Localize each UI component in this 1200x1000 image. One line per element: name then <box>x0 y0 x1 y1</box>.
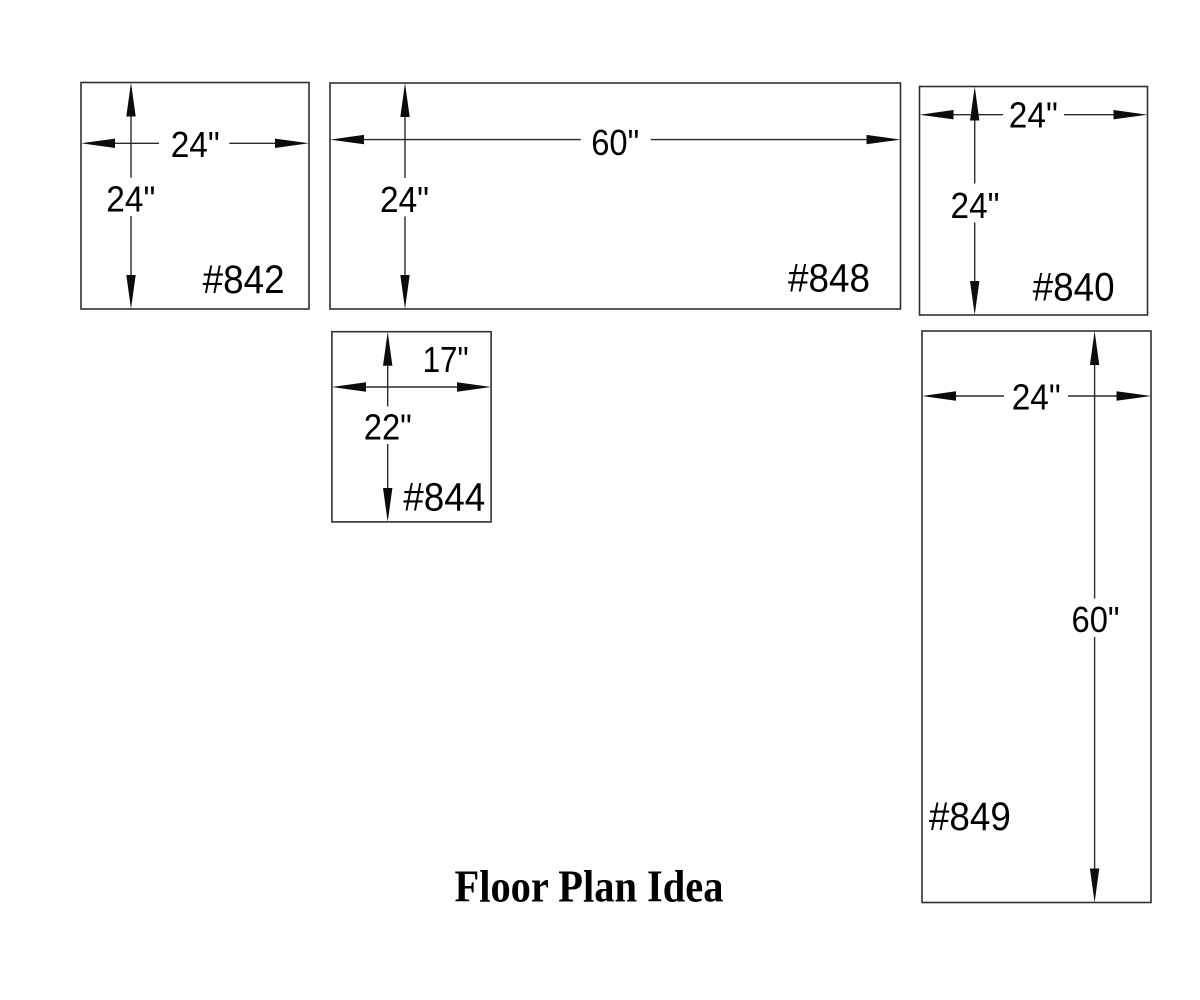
svg-text:#849: #849 <box>929 795 1011 839</box>
svg-text:17": 17" <box>423 339 469 380</box>
svg-text:#842: #842 <box>203 258 285 302</box>
svg-text:24": 24" <box>1012 377 1061 418</box>
svg-text:24": 24" <box>951 185 1000 226</box>
svg-text:22": 22" <box>364 407 412 448</box>
svg-text:24": 24" <box>1009 95 1058 136</box>
svg-text:24": 24" <box>171 124 220 165</box>
svg-text:24": 24" <box>380 179 429 220</box>
svg-text:#844: #844 <box>403 476 485 520</box>
svg-text:60": 60" <box>591 122 639 163</box>
svg-text:#840: #840 <box>1033 265 1115 309</box>
svg-text:Floor Plan Idea: Floor Plan Idea <box>455 862 724 912</box>
svg-text:#848: #848 <box>788 256 870 300</box>
svg-text:60": 60" <box>1072 599 1120 640</box>
svg-text:24": 24" <box>106 179 155 220</box>
